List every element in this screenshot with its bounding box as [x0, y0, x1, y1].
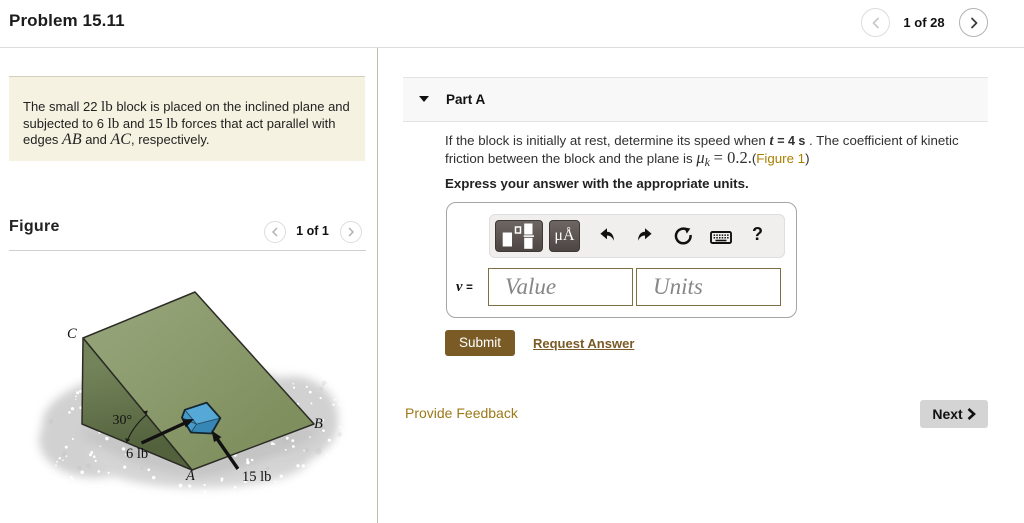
- svg-text:A: A: [185, 468, 195, 484]
- svg-text:30°: 30°: [113, 413, 133, 428]
- svg-text:6 lb: 6 lb: [126, 446, 148, 462]
- svg-text:B: B: [314, 416, 323, 432]
- svg-text:15 lb: 15 lb: [242, 469, 271, 485]
- svg-text:C: C: [67, 326, 77, 342]
